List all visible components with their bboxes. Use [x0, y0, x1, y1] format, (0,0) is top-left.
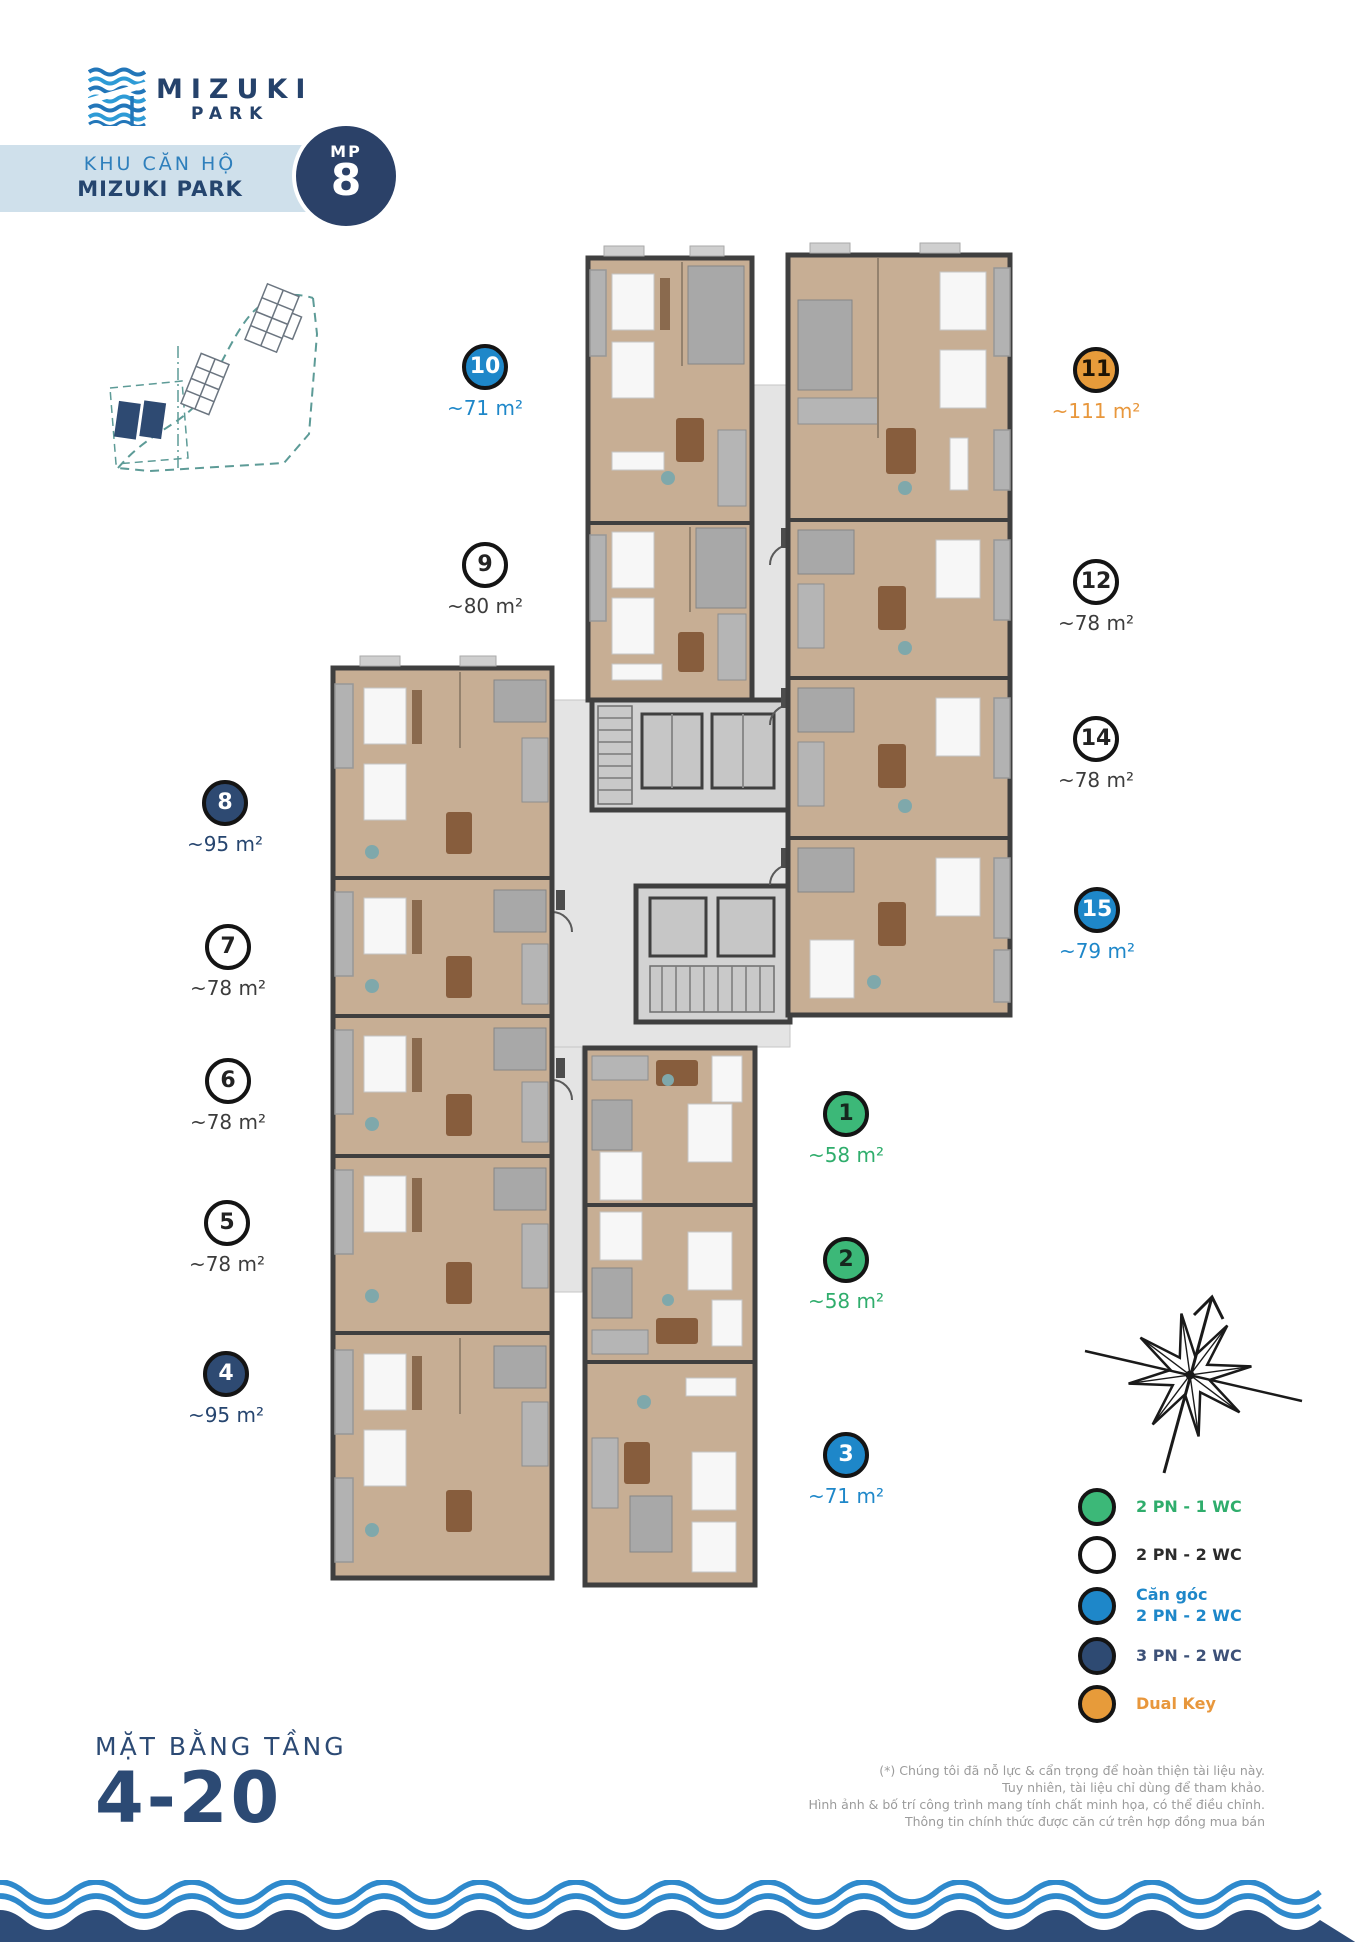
logo-title: MIZUKI — [156, 74, 313, 105]
unit-area: ~58 m² — [771, 1289, 921, 1313]
unit-circle: 11 — [1073, 347, 1119, 393]
unit-area: ~78 m² — [152, 1252, 302, 1276]
unit-area: ~111 m² — [1021, 399, 1171, 423]
legend-green-icon — [1078, 1488, 1116, 1526]
unit-marker-4: 4 ~95 m² — [151, 1351, 301, 1427]
wave-footer — [0, 1880, 1355, 1942]
legend-label: 2 PN - 2 WC — [1136, 1545, 1242, 1566]
unit-marker-2: 2 ~58 m² — [771, 1237, 921, 1313]
unit-circle: 4 — [203, 1351, 249, 1397]
unit-marker-3: 3 ~71 m² — [771, 1432, 921, 1508]
legend-item-2pn-1wc: 2 PN - 1 WC — [1078, 1487, 1242, 1527]
unit-area: ~58 m² — [771, 1143, 921, 1167]
unit-circle: 7 — [205, 924, 251, 970]
unit-circle: 9 — [462, 542, 508, 588]
unit-area: ~95 m² — [151, 1403, 301, 1427]
legend-label: 3 PN - 2 WC — [1136, 1646, 1242, 1667]
compass-icon — [1085, 1297, 1302, 1473]
disclaimer-line: Thông tin chính thức được căn cứ trên hợ… — [705, 1813, 1265, 1830]
legend-label-line1: Căn góc — [1136, 1585, 1207, 1604]
disclaimer-line: Hình ảnh & bố trí công trình mang tính c… — [705, 1796, 1265, 1813]
unit-circle: 14 — [1073, 716, 1119, 762]
unit-marker-7: 7 ~78 m² — [153, 924, 303, 1000]
unit-area: ~71 m² — [771, 1484, 921, 1508]
floorplan-poster: MIZUKI PARK KHU CĂN HỘ MIZUKI PARK MP 8 … — [0, 0, 1355, 1942]
wing-left — [333, 656, 552, 1578]
badge-number: 8 — [296, 161, 396, 201]
legend-white-icon — [1078, 1536, 1116, 1574]
unit-marker-5: 5 ~78 m² — [152, 1200, 302, 1276]
unit-area: ~71 m² — [410, 396, 560, 420]
core-a — [592, 700, 790, 810]
legend-label: 2 PN - 1 WC — [1136, 1497, 1242, 1518]
mizuki-park-logo: MIZUKI PARK — [88, 58, 368, 128]
legend-blue-icon — [1078, 1587, 1116, 1625]
unit-marker-12: 12 ~78 m² — [1021, 559, 1171, 635]
unit-marker-1: 1 ~58 m² — [771, 1091, 921, 1167]
core-b — [636, 886, 790, 1022]
legend-label-line2: 2 PN - 2 WC — [1136, 1606, 1242, 1625]
legend-orange-icon — [1078, 1685, 1116, 1723]
unit-marker-6: 6 ~78 m² — [153, 1058, 303, 1134]
unit-circle: 10 — [462, 344, 508, 390]
unit-marker-14: 14 ~78 m² — [1021, 716, 1171, 792]
legend-item-2pn-2wc: 2 PN - 2 WC — [1078, 1535, 1242, 1575]
unit-circle: 5 — [204, 1200, 250, 1246]
unit-area: ~95 m² — [150, 832, 300, 856]
highlighted-building-mp8 — [114, 397, 166, 443]
legend-item-can-goc: Căn góc 2 PN - 2 WC — [1078, 1580, 1242, 1632]
unit-circle: 6 — [205, 1058, 251, 1104]
banner-line2: MIZUKI PARK — [30, 177, 290, 201]
wing-top-left — [588, 246, 752, 700]
legend-item-dual-key: Dual Key — [1078, 1684, 1216, 1724]
unit-area: ~79 m² — [1022, 939, 1172, 963]
unit-area: ~78 m² — [1021, 611, 1171, 635]
unit-marker-8: 8 ~95 m² — [150, 780, 300, 856]
unit-circle: 3 — [823, 1432, 869, 1478]
legend-navy-icon — [1078, 1637, 1116, 1675]
site-map-diagram — [110, 284, 317, 471]
unit-area: ~78 m² — [153, 1110, 303, 1134]
disclaimer: (*) Chúng tôi đã nỗ lực & cẩn trọng để h… — [705, 1762, 1265, 1830]
unit-marker-15: 15 ~79 m² — [1022, 887, 1172, 963]
unit-circle: 1 — [823, 1091, 869, 1137]
disclaimer-line: (*) Chúng tôi đã nỗ lực & cẩn trọng để h… — [705, 1762, 1265, 1779]
unit-circle: 8 — [202, 780, 248, 826]
wing-top-right — [788, 243, 1010, 1015]
floor-title-range: 4-20 — [95, 1763, 347, 1833]
unit-marker-10: 10 ~71 m² — [410, 344, 560, 420]
disclaimer-line: Tuy nhiên, tài liệu chỉ dùng để tham khả… — [705, 1779, 1265, 1796]
unit-circle: 15 — [1074, 887, 1120, 933]
floor-title: MẶT BẰNG TẦNG 4-20 — [95, 1732, 347, 1833]
legend-item-3pn-2wc: 3 PN - 2 WC — [1078, 1636, 1242, 1676]
unit-area: ~80 m² — [410, 594, 560, 618]
logo-subtitle: PARK — [191, 104, 269, 124]
legend-label: Dual Key — [1136, 1694, 1216, 1715]
unit-circle: 12 — [1073, 559, 1119, 605]
unit-area: ~78 m² — [1021, 768, 1171, 792]
unit-marker-9: 9 ~80 m² — [410, 542, 560, 618]
banner-line1: KHU CĂN HỘ — [30, 153, 290, 175]
unit-circle: 2 — [823, 1237, 869, 1283]
unit-marker-11: 11 ~111 m² — [1021, 347, 1171, 423]
wing-bottom — [585, 1048, 755, 1585]
mizuki-wave-icon — [88, 66, 146, 126]
unit-area: ~78 m² — [153, 976, 303, 1000]
building-badge-mp8: MP 8 — [292, 122, 400, 230]
